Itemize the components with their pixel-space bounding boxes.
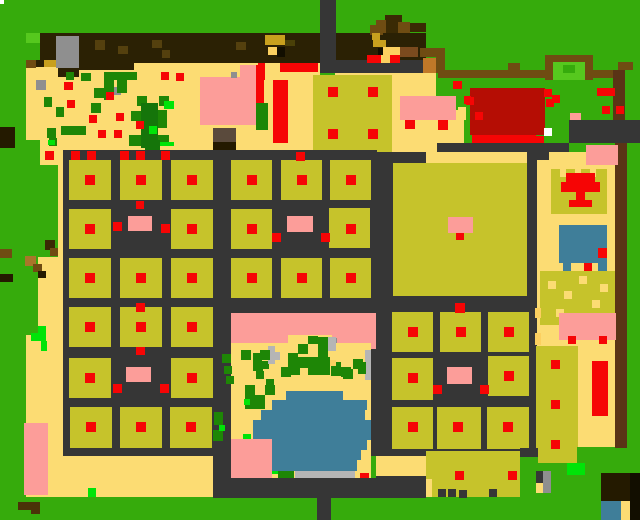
town-map[interactable]	[0, 0, 640, 520]
map-viewport	[0, 0, 640, 520]
